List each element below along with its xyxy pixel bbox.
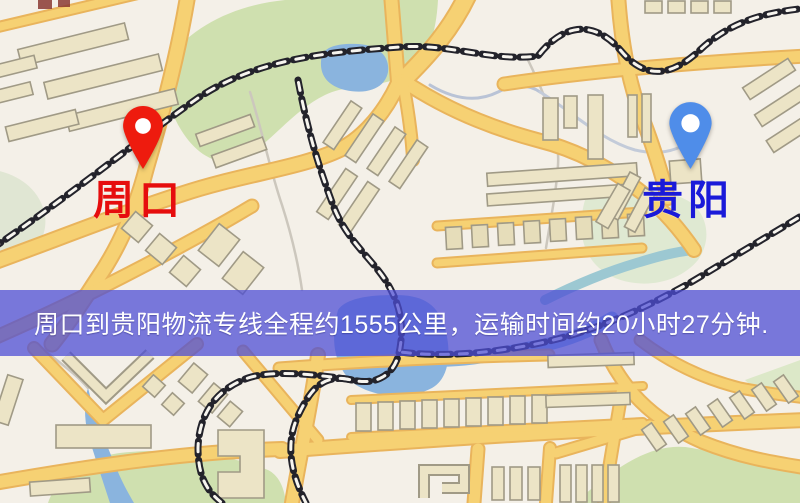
route-info-banner: 周口到贵阳物流专线全程约1555公里，运输时间约20小时27分钟. [0,290,800,356]
pin-hole [681,114,699,132]
origin-map-pin-icon [122,105,164,170]
destination-map-pin-icon [668,101,713,170]
origin-city-label: 周口 [93,180,185,221]
destination-city-label: 贵阳 [642,180,734,221]
logistics-route-map: 周口 贵阳 周口到贵阳物流专线全程约1555公里，运输时间约20小时27分钟. [0,0,800,503]
map-canvas [0,0,800,503]
pin-body [669,102,711,169]
pin-body [123,106,163,169]
pin-hole [135,118,151,134]
route-info-text: 周口到贵阳物流专线全程约1555公里，运输时间约20小时27分钟. [0,305,769,341]
